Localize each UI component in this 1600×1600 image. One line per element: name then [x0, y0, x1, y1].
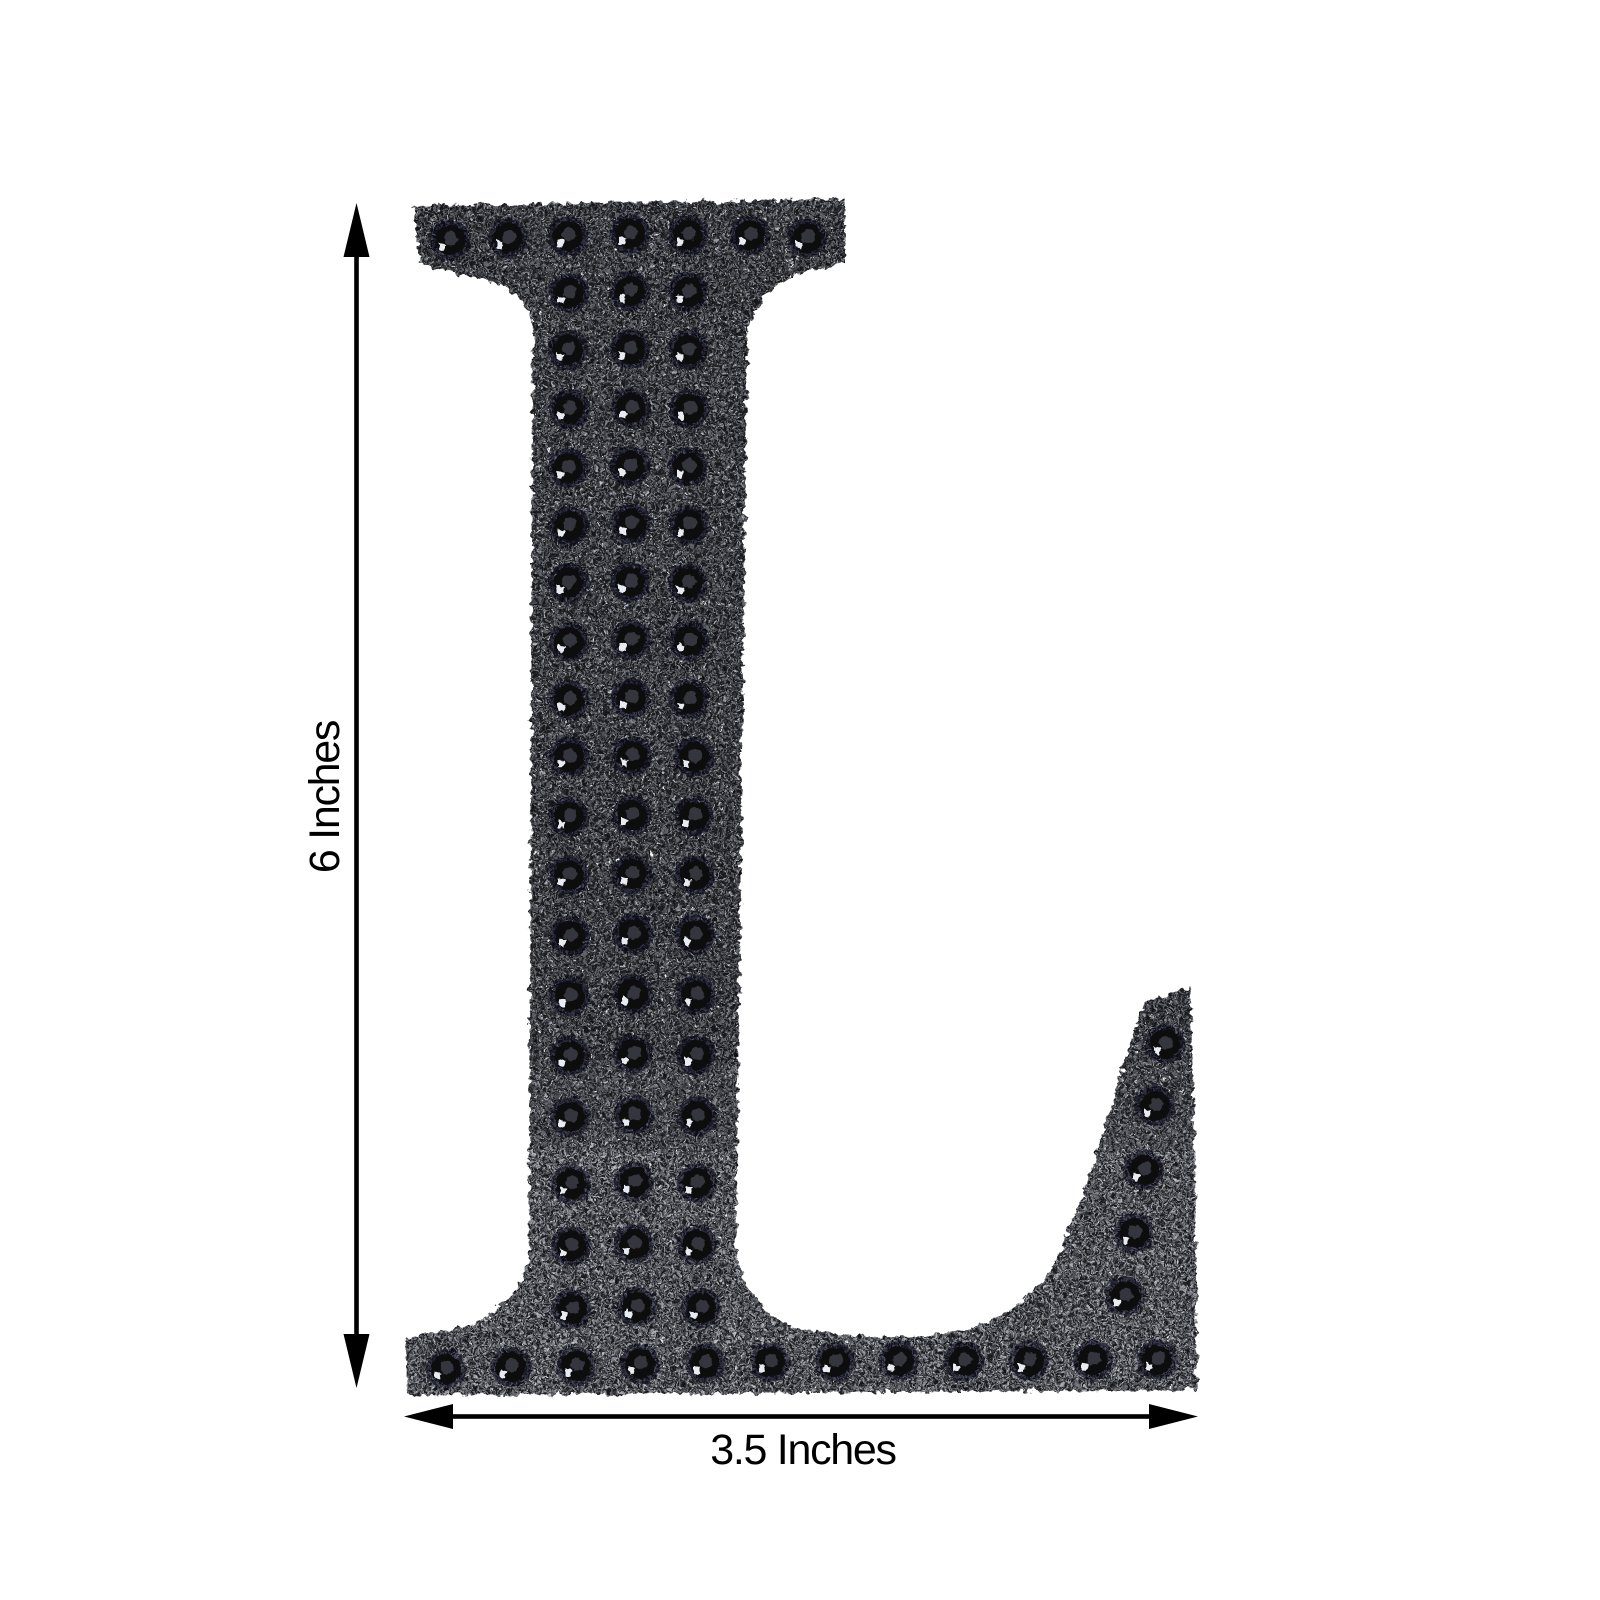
svg-text:3.5 Inches: 3.5 Inches	[710, 1426, 895, 1474]
svg-text:6 Inches: 6 Inches	[301, 721, 349, 873]
